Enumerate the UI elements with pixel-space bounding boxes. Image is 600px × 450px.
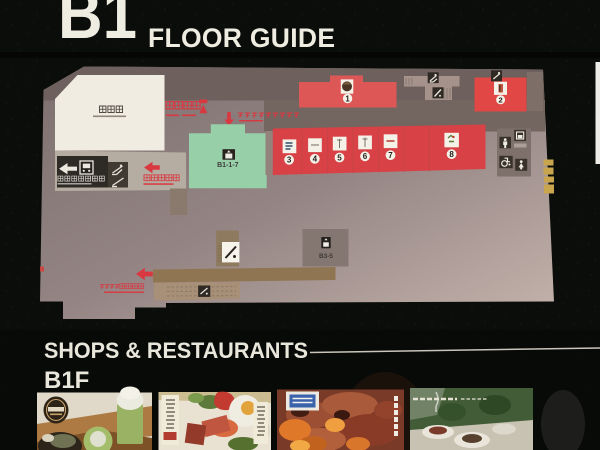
svg-text:B3-5: B3-5 [319, 253, 333, 260]
svg-text:1: 1 [345, 94, 350, 103]
svg-text:5: 5 [337, 153, 342, 162]
svg-text:4: 4 [313, 155, 318, 164]
svg-text:SHOPS & RESTAURANTS: SHOPS & RESTAURANTS [44, 338, 308, 363]
svg-text:3: 3 [287, 156, 292, 165]
svg-text:7: 7 [388, 151, 393, 160]
svg-text:6: 6 [363, 152, 368, 161]
svg-text:B1: B1 [58, 0, 137, 53]
svg-text:B1-1-7: B1-1-7 [217, 162, 239, 169]
svg-text:FLOOR GUIDE: FLOOR GUIDE [148, 23, 335, 53]
svg-text:2: 2 [498, 96, 502, 105]
svg-text:B1F: B1F [44, 367, 89, 394]
svg-text:8: 8 [449, 150, 454, 159]
